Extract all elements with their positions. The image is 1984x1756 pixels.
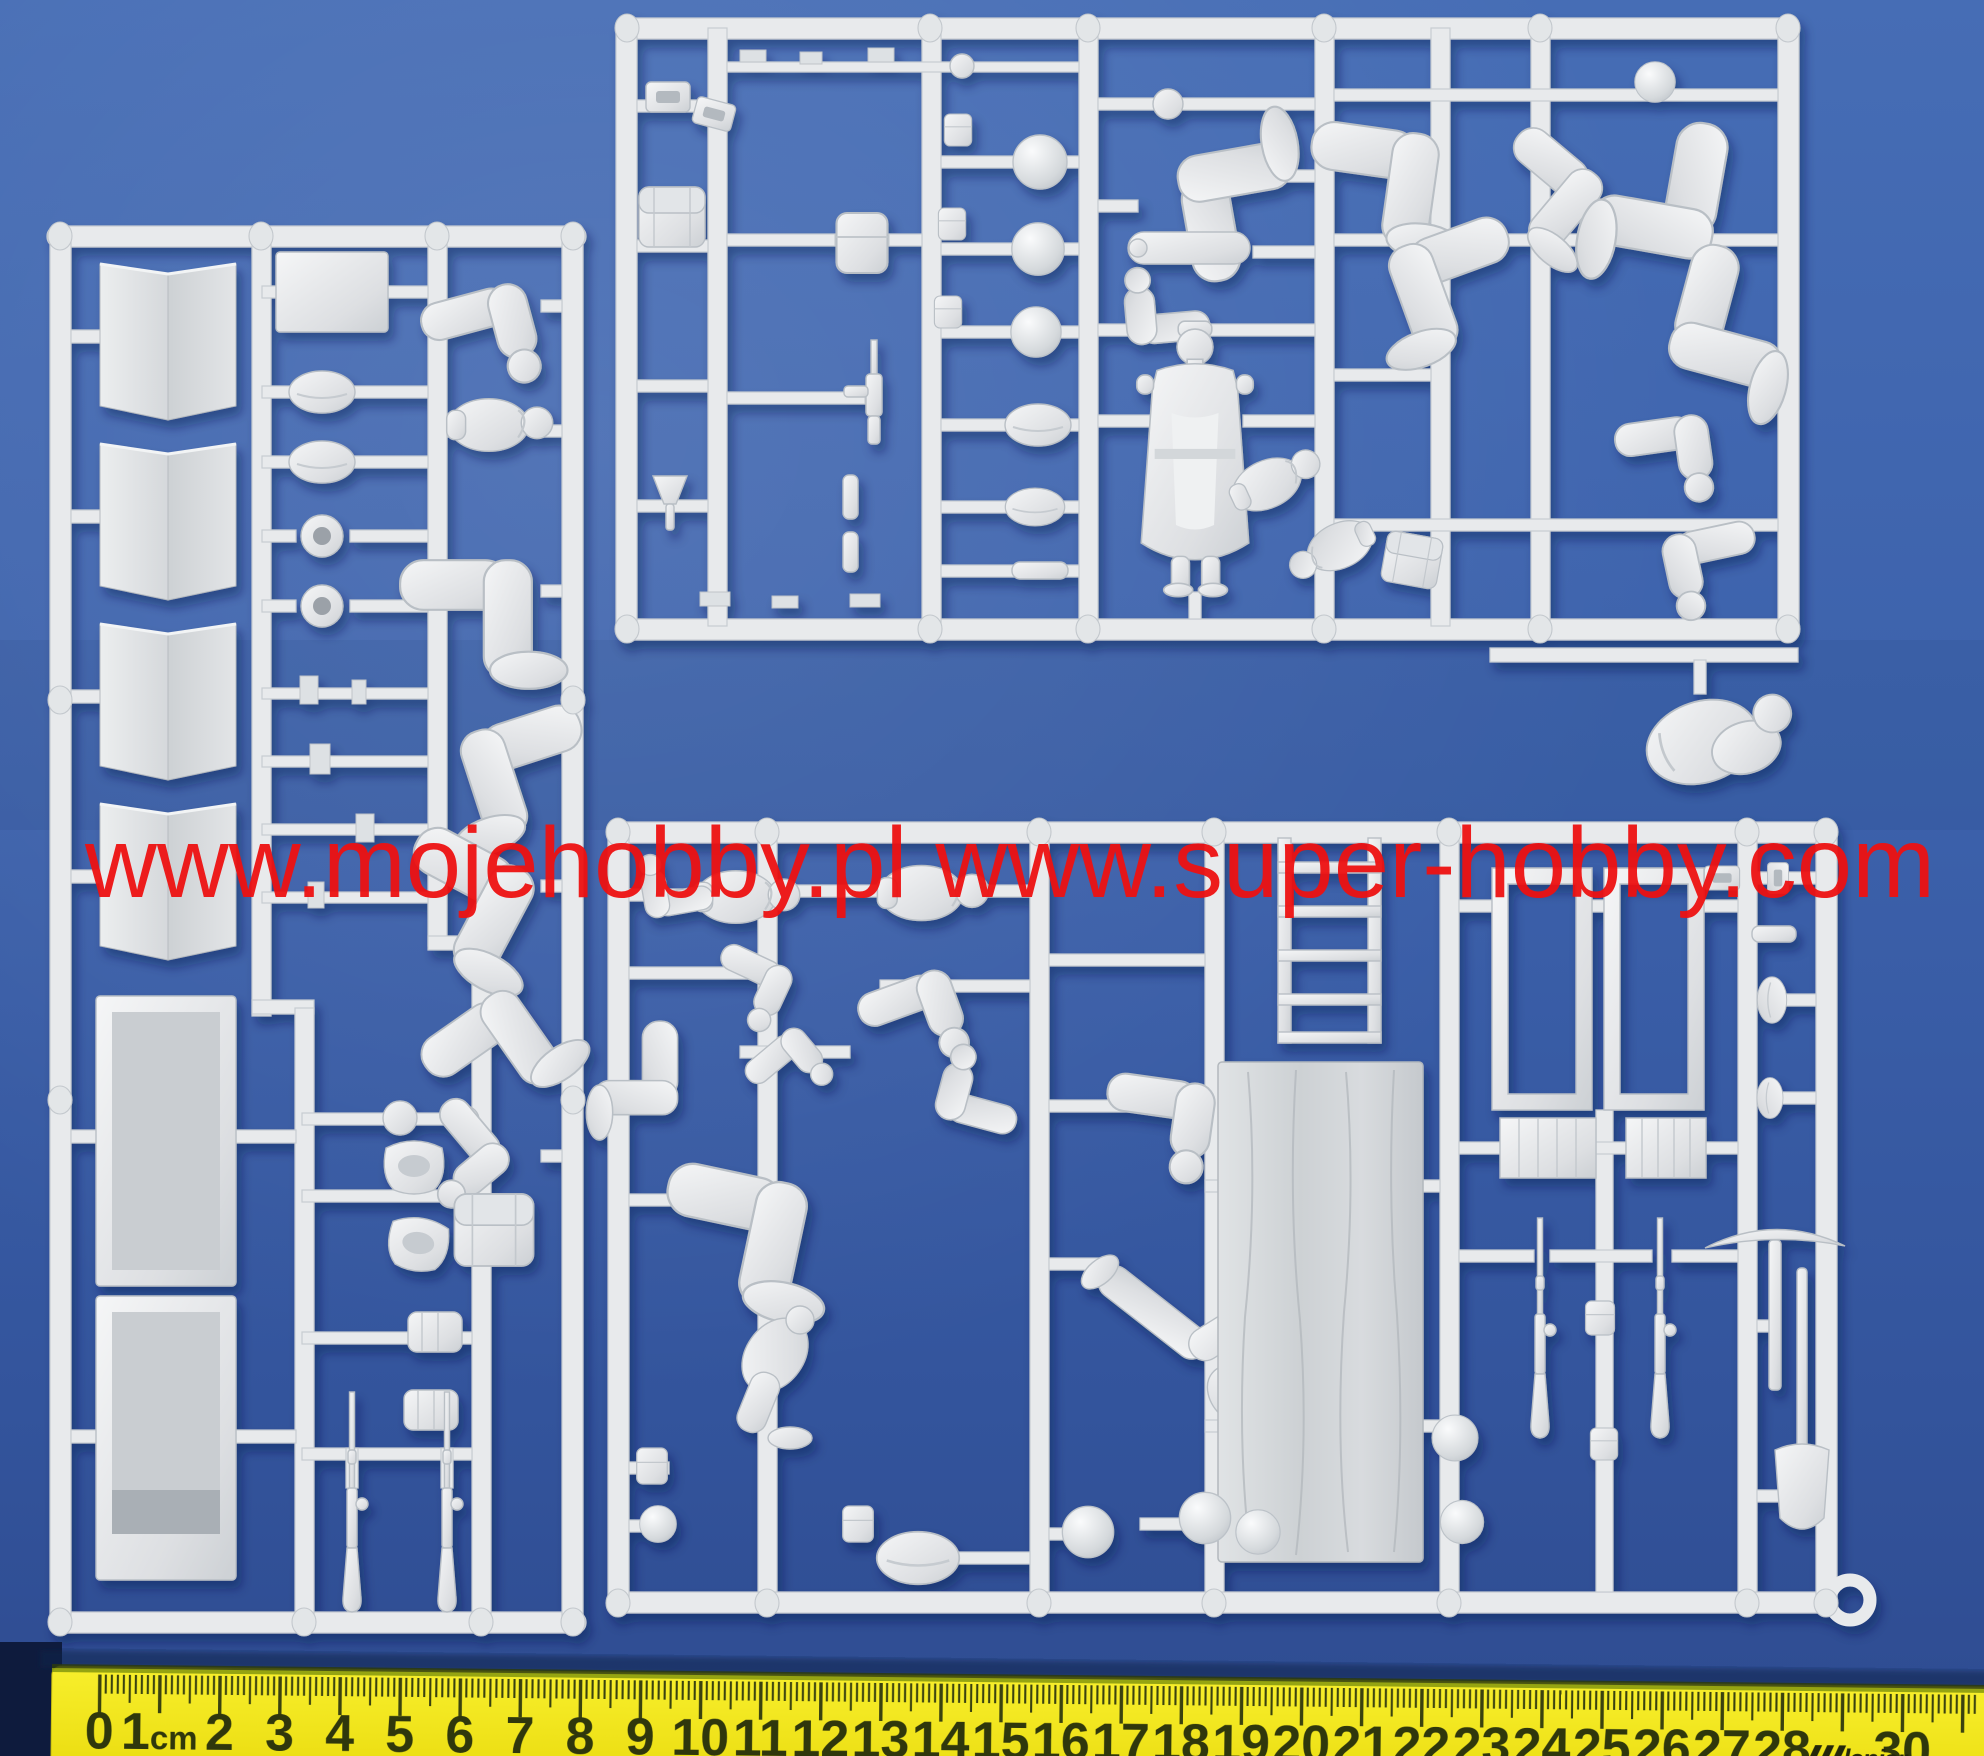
ruler-number: 8 bbox=[565, 1708, 595, 1756]
ruler-number: 7 bbox=[505, 1707, 535, 1756]
ruler-number: 4 bbox=[325, 1705, 355, 1756]
ruler-number: 15 bbox=[971, 1712, 1029, 1756]
backpack-part bbox=[454, 1194, 533, 1266]
ruler-number: 3 bbox=[265, 1704, 295, 1756]
pouch-part bbox=[843, 1506, 874, 1542]
canister-part bbox=[408, 1312, 462, 1352]
bread-bag-part bbox=[837, 213, 888, 273]
slat-lid-part bbox=[1500, 1118, 1596, 1178]
pouch-part bbox=[1586, 1301, 1615, 1335]
sprue-photo: www.mojehobby.pl www.super-hobby.com 01c… bbox=[0, 0, 1984, 1756]
pouch-part bbox=[938, 208, 965, 240]
buckle-part bbox=[646, 82, 690, 112]
ruler-number: 10 bbox=[671, 1709, 729, 1756]
helmet-part bbox=[1011, 307, 1061, 357]
lens-part bbox=[289, 371, 355, 413]
folded-panel-part bbox=[100, 624, 236, 780]
ring-part bbox=[301, 515, 343, 557]
canteen-part bbox=[1757, 977, 1786, 1023]
helmet-part bbox=[1440, 1500, 1483, 1543]
oval-plate-part bbox=[877, 1532, 960, 1585]
watermark-text: www.mojehobby.pl www.super-hobby.com bbox=[84, 807, 1935, 919]
grenade-part bbox=[843, 532, 858, 572]
sprue-photo-stage: www.mojehobby.pl www.super-hobby.com 01c… bbox=[0, 0, 1984, 1756]
backpack-part bbox=[1380, 530, 1444, 590]
tray-part bbox=[96, 1296, 236, 1580]
canteen-part bbox=[1005, 404, 1071, 446]
ruler-number: 14 bbox=[911, 1711, 970, 1756]
helmet-part bbox=[1013, 135, 1067, 189]
lens-part bbox=[289, 441, 355, 483]
helmet-part bbox=[640, 1506, 677, 1543]
ruler-number: 16 bbox=[1032, 1713, 1090, 1756]
helmet-shell-part bbox=[384, 1141, 444, 1194]
slat-lid-part bbox=[1626, 1118, 1706, 1178]
cylinder-part bbox=[1012, 562, 1068, 579]
ruler-number: 6 bbox=[445, 1706, 475, 1756]
grenade-part bbox=[843, 475, 858, 519]
canteen-part bbox=[1005, 488, 1064, 526]
helmet-part bbox=[1012, 223, 1064, 275]
tray-part bbox=[96, 996, 236, 1286]
folded-panel-part bbox=[100, 444, 236, 600]
helmet-part bbox=[1236, 1510, 1280, 1554]
small-part bbox=[300, 676, 318, 704]
folded-panel-part bbox=[100, 264, 236, 420]
ruler-number: 28 bbox=[1753, 1720, 1811, 1756]
disc-part bbox=[1153, 89, 1183, 119]
small-part bbox=[310, 744, 330, 774]
pouch-part bbox=[1590, 1428, 1617, 1460]
ruler-number: 20 bbox=[1272, 1715, 1330, 1756]
ruler-number: 24 bbox=[1512, 1718, 1571, 1756]
ruler-number: 13 bbox=[851, 1711, 909, 1756]
helmet-part bbox=[1062, 1506, 1113, 1557]
helmet-part bbox=[1179, 1492, 1230, 1543]
helmet-part bbox=[1432, 1415, 1478, 1461]
ruler-brand-text: leniar bbox=[1843, 1743, 1910, 1756]
ruler-number: 27 bbox=[1693, 1720, 1751, 1756]
ruler-number: 19 bbox=[1212, 1715, 1270, 1756]
ruler-number: 11 bbox=[733, 1709, 789, 1756]
ruler-number: 26 bbox=[1633, 1719, 1691, 1756]
ruler-number: 17 bbox=[1092, 1713, 1150, 1756]
ruler-number: 5 bbox=[385, 1706, 415, 1756]
cylinder-part bbox=[1752, 926, 1796, 942]
ruler-number: 0 bbox=[84, 1702, 114, 1756]
rolled-arm-part bbox=[1128, 232, 1250, 264]
helmet-part bbox=[1635, 62, 1676, 103]
ruler-number: 23 bbox=[1452, 1717, 1510, 1756]
ruler-number: 22 bbox=[1392, 1717, 1450, 1756]
ring-part bbox=[301, 585, 343, 627]
wood-plank-part bbox=[1218, 1062, 1423, 1562]
ruler-number: 25 bbox=[1572, 1718, 1630, 1756]
canteen-part bbox=[1757, 1078, 1783, 1119]
pouch-part bbox=[934, 296, 961, 328]
ruler-number: 9 bbox=[625, 1708, 655, 1756]
ruler-number: 12 bbox=[791, 1710, 849, 1756]
ruler-number: 21 bbox=[1332, 1716, 1390, 1756]
small-part bbox=[352, 680, 366, 704]
backpack-part bbox=[639, 187, 705, 247]
pouch-part bbox=[944, 114, 971, 146]
pouch-part bbox=[637, 1448, 668, 1484]
plate-part bbox=[276, 252, 388, 332]
ruler-number: 18 bbox=[1152, 1714, 1210, 1756]
ruler-number: 2 bbox=[205, 1704, 235, 1756]
